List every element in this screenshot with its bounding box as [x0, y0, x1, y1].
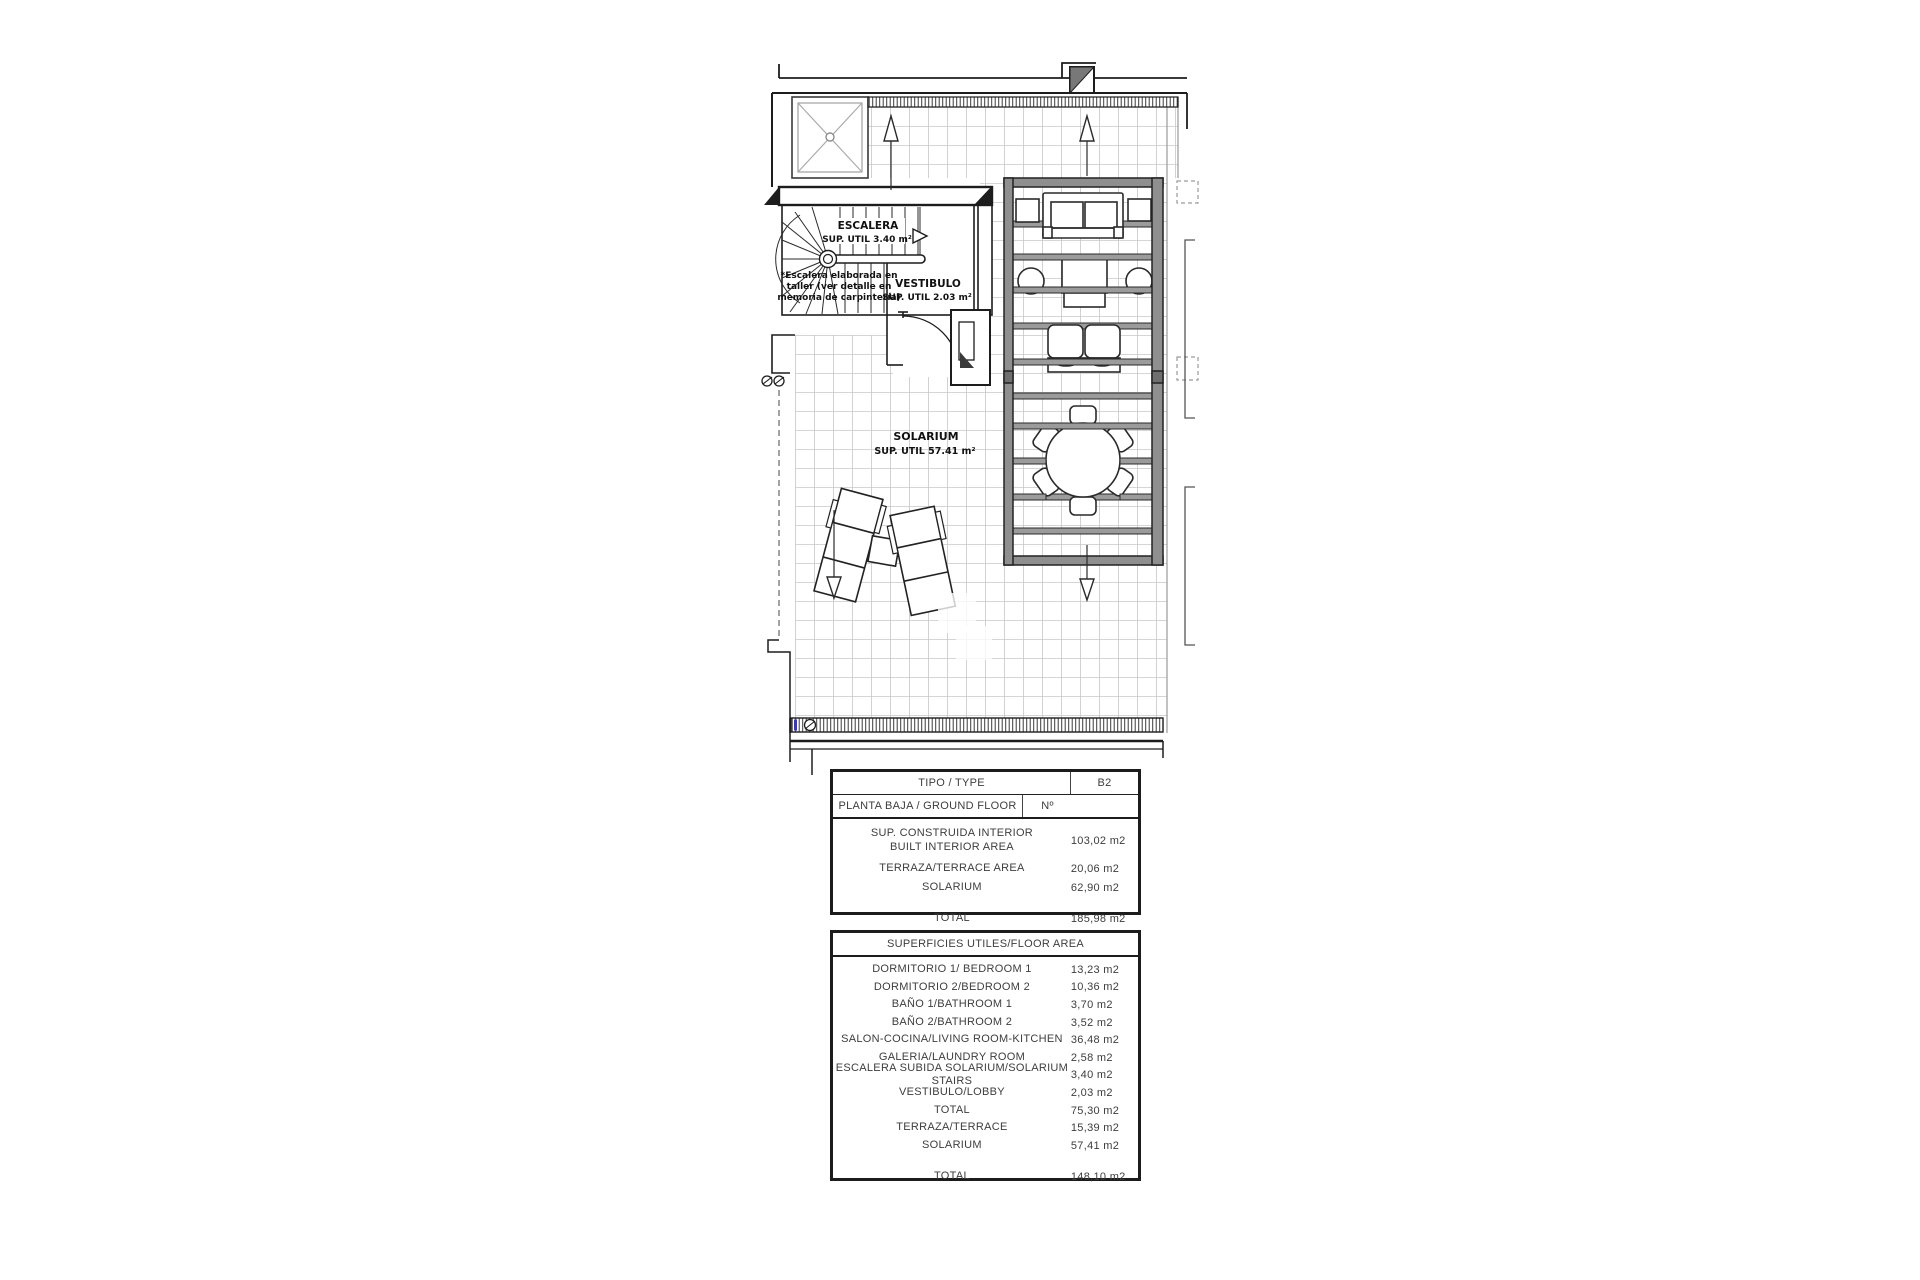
row-value: 75,30 m2 — [1071, 1105, 1138, 1117]
top-railing — [868, 97, 1178, 107]
pillar-symbol — [1070, 67, 1094, 93]
table-row: SOLARIUM 62,90 m2 — [833, 878, 1138, 897]
table-row: DORMITORIO 2/BEDROOM 2 10,36 m2 — [833, 979, 1138, 997]
total-value: 185,98 m2 — [1071, 913, 1138, 925]
row-label: VESTIBULO/LOBBY — [833, 1086, 1071, 1100]
row-value: 62,90 m2 — [1071, 882, 1138, 894]
sofa — [1043, 193, 1123, 238]
table-row: SALON-COCINA/LIVING ROOM-KITCHEN 36,48 m… — [833, 1031, 1138, 1049]
row-label: SOLARIUM — [833, 1139, 1071, 1153]
row-value: 10,36 m2 — [1071, 981, 1138, 993]
table-row: BAÑO 2/BATHROOM 2 3,52 m2 — [833, 1014, 1138, 1032]
table-row: TERRAZA/TERRACE 15,39 m2 — [833, 1119, 1138, 1137]
total-label: TOTAL — [833, 912, 1071, 926]
bottom-railing — [790, 718, 1163, 775]
row-value: 15,39 m2 — [1071, 1122, 1138, 1134]
skylight — [792, 97, 868, 178]
row-value: 36,48 m2 — [1071, 1034, 1138, 1046]
total-label: TOTAL — [833, 1170, 1071, 1184]
row-label: SOLARIUM — [833, 881, 1071, 895]
dining-chair-top — [1070, 406, 1096, 424]
type-row: TIPO / TYPE B2 — [833, 772, 1138, 795]
floor-areas-table: SUPERFICIES UTILES/FLOOR AREA DORMITORIO… — [830, 930, 1141, 1181]
number-label: Nº — [1022, 795, 1072, 817]
dining-chair-bottom — [1070, 497, 1096, 515]
row-label: BAÑO 1/BATHROOM 1 — [833, 998, 1071, 1012]
floor-label: PLANTA BAJA / GROUND FLOOR — [833, 795, 1022, 817]
table-row: BAÑO 1/BATHROOM 1 3,70 m2 — [833, 996, 1138, 1014]
table-row: SUP. CONSTRUIDA INTERIOR BUILT INTERIOR … — [833, 823, 1138, 859]
areas-table-header: SUPERFICIES UTILES/FLOOR AREA — [833, 933, 1138, 957]
row-value: 3,52 m2 — [1071, 1017, 1138, 1029]
stair-note-line3: memoria de carpintería) — [777, 293, 900, 303]
stair-note-line1: *Escalera elaborada en — [780, 271, 897, 281]
row-label: TERRAZA/TERRACE AREA — [833, 862, 1071, 876]
table-row: SOLARIUM 57,41 m2 — [833, 1137, 1138, 1155]
row-label: BAÑO 2/BATHROOM 2 — [833, 1016, 1071, 1030]
row-label: SALON-COCINA/LIVING ROOM-KITCHEN — [833, 1033, 1071, 1047]
escalera-area: SUP. UTIL 3.40 m² — [822, 235, 912, 245]
beam — [779, 187, 992, 205]
left-edge-details — [762, 335, 795, 733]
row-label: DORMITORIO 1/ BEDROOM 1 — [833, 963, 1071, 977]
total-row: TOTAL 185,98 m2 — [833, 909, 1138, 928]
table-row: DORMITORIO 1/ BEDROOM 1 13,23 m2 — [833, 961, 1138, 979]
floor-row: PLANTA BAJA / GROUND FLOOR Nº — [833, 795, 1138, 819]
side-table-left — [1016, 199, 1039, 222]
row-value: 13,23 m2 — [1071, 964, 1138, 976]
row-value: 57,41 m2 — [1071, 1140, 1138, 1152]
solarium-area: SUP. UTIL 57.41 m² — [874, 446, 975, 457]
row-value: 103,02 m2 — [1071, 835, 1138, 847]
row-label: TOTAL — [833, 1104, 1071, 1118]
row-value: 2,58 m2 — [1071, 1052, 1138, 1064]
row-label: TERRAZA/TERRACE — [833, 1121, 1071, 1135]
summary-table: TIPO / TYPE B2 PLANTA BAJA / GROUND FLOO… — [830, 769, 1141, 915]
row-label: DORMITORIO 2/BEDROOM 2 — [833, 981, 1071, 995]
blue-marker — [794, 720, 797, 731]
total-row: TOTAL 148,10 m2 — [833, 1169, 1138, 1187]
row-label: ESCALERA SUBIDA SOLARIUM/SOLARIUM STAIRS — [833, 1062, 1071, 1090]
table-row: TOTAL 75,30 m2 — [833, 1102, 1138, 1120]
escalera-label: ESCALERA — [838, 220, 900, 232]
row-value: 3,40 m2 — [1071, 1069, 1138, 1081]
stair-note-line2: taller (ver detalle en — [787, 282, 892, 292]
table-row: TERRAZA/TERRACE AREA 20,06 m2 — [833, 859, 1138, 878]
section-markers — [1177, 181, 1198, 645]
row-label: SUP. CONSTRUIDA INTERIOR — [871, 827, 1033, 839]
page: ESCALERA SUP. UTIL 3.40 m² VESTIBULO SUP… — [0, 0, 1920, 1280]
type-value: B2 — [1070, 772, 1138, 794]
side-table-right — [1128, 199, 1151, 221]
row-value: 2,03 m2 — [1071, 1087, 1138, 1099]
dining-table — [1046, 423, 1120, 497]
closet — [951, 310, 990, 385]
type-label: TIPO / TYPE — [833, 772, 1070, 794]
total-value: 148,10 m2 — [1071, 1171, 1138, 1183]
table-row: ESCALERA SUBIDA SOLARIUM/SOLARIUM STAIRS… — [833, 1067, 1138, 1085]
row-value: 20,06 m2 — [1071, 863, 1138, 875]
table-row: VESTIBULO/LOBBY 2,03 m2 — [833, 1084, 1138, 1102]
solarium-label: SOLARIUM — [893, 430, 958, 443]
row-label2: BUILT INTERIOR AREA — [890, 841, 1014, 853]
vestibulo-label: VESTIBULO — [895, 278, 961, 290]
row-value: 3,70 m2 — [1071, 999, 1138, 1011]
